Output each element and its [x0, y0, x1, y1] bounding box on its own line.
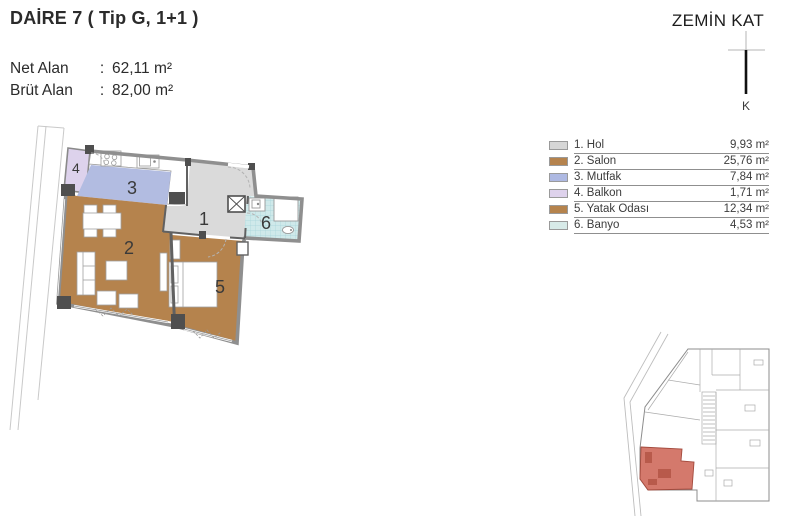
site-boundary-lines — [10, 126, 64, 430]
floorplan-canvas: 1 2 3 4 5 6 K — [0, 0, 800, 531]
label-room-banyo: 6 — [261, 213, 271, 233]
main-floorplan: 1 2 3 4 5 6 — [57, 145, 302, 343]
north-arrow: K — [728, 31, 765, 113]
tv-console — [160, 253, 167, 291]
north-label: K — [742, 99, 750, 113]
toilet — [283, 226, 294, 233]
fridge — [169, 192, 185, 204]
closet-notch — [237, 242, 248, 255]
label-room-salon: 2 — [124, 238, 134, 258]
shower — [274, 197, 298, 221]
label-room-hol: 1 — [199, 209, 209, 229]
key-plan — [624, 332, 769, 516]
label-room-balkon: 4 — [72, 160, 80, 176]
bath-sink — [249, 198, 265, 211]
label-room-mutfak: 3 — [127, 178, 137, 198]
label-room-yatak: 5 — [215, 277, 225, 297]
bed — [169, 262, 217, 307]
shaft — [228, 196, 245, 212]
page: { "header": { "title": "DAİRE 7 ( Tip G,… — [0, 0, 800, 531]
coffee-table — [106, 261, 127, 280]
sofa — [77, 252, 95, 295]
